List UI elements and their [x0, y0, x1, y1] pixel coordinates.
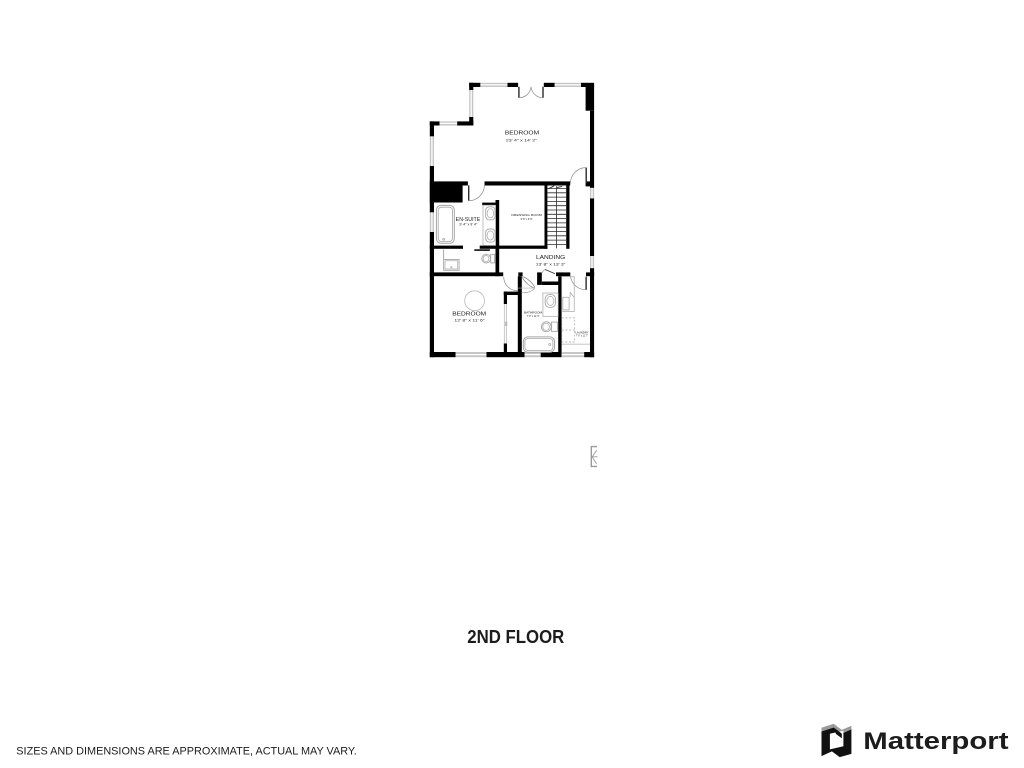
- svg-text:9' 4" x 9' 4": 9' 4" x 9' 4": [459, 223, 478, 227]
- svg-text:9' 8" x 9' 8": 9' 8" x 9' 8": [521, 217, 533, 221]
- svg-text:LANDING: LANDING: [536, 255, 565, 261]
- svg-text:23' 4" x 14' 2": 23' 4" x 14' 2": [506, 138, 538, 143]
- svg-text:12' 8" x 11' 6": 12' 8" x 11' 6": [454, 317, 485, 322]
- svg-text:SIZES AND DIMENSIONS ARE APPRO: SIZES AND DIMENSIONS ARE APPROXIMATE, AC…: [16, 745, 357, 757]
- svg-text:BEDROOM: BEDROOM: [505, 131, 539, 137]
- svg-text:7' 9" x 11' 9": 7' 9" x 11' 9": [527, 314, 540, 318]
- svg-text:13' 8" x 13' 3": 13' 8" x 13' 3": [536, 262, 566, 267]
- svg-text:2ND FLOOR: 2ND FLOOR: [467, 626, 564, 647]
- svg-text:Matterport: Matterport: [863, 728, 1008, 755]
- svg-text:7' 6" x 11' 7": 7' 6" x 11' 7": [576, 333, 588, 337]
